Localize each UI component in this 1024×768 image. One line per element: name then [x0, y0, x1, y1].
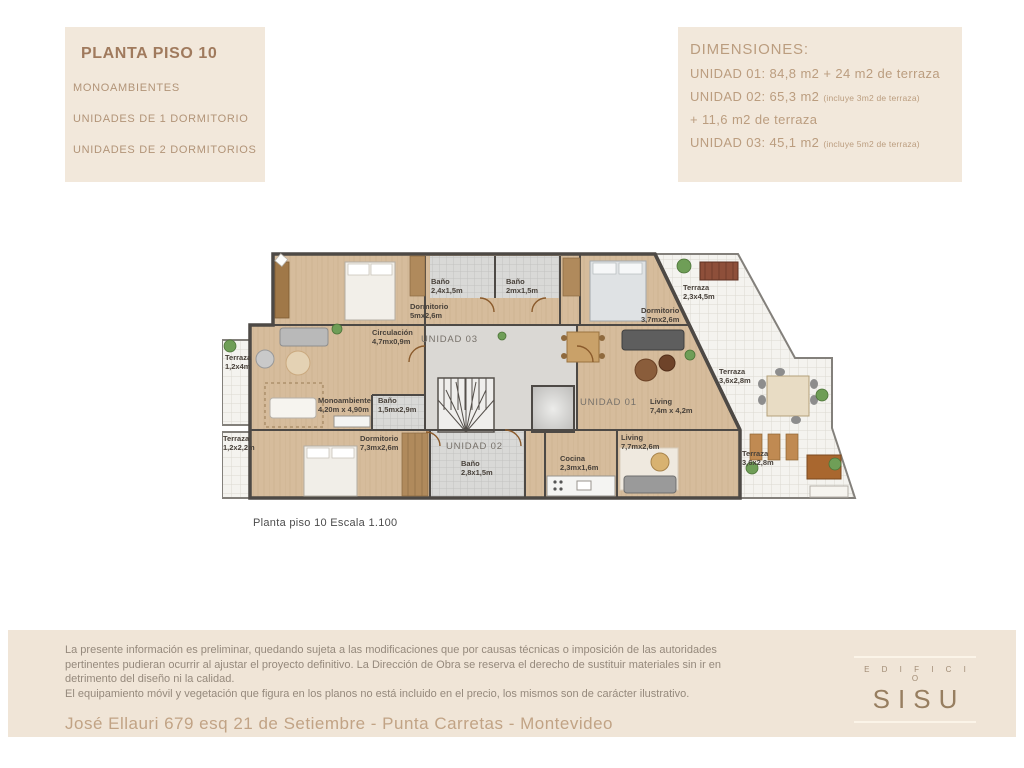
sisu-logo: E D I F I C I O SISU	[850, 656, 980, 723]
room-label: Terraza1,2x4m	[225, 354, 251, 371]
kitchen-counter-icon	[547, 476, 615, 496]
room-label: Circulación4,7mx0,9m	[372, 329, 413, 346]
rug-icon	[286, 351, 310, 375]
bed-icon	[345, 262, 395, 320]
room-label: Cocina2,3mx1,6m	[560, 455, 598, 472]
grill-icon	[700, 262, 738, 280]
legend-item-monoambientes: MONOAMBIENTES	[73, 82, 265, 94]
disclaimer-paragraph-1: La presente información es preliminar, q…	[65, 643, 759, 687]
room-label: Terraza3,6x2,8m	[719, 368, 751, 385]
room-label: Dormitorio5mx2,6m	[410, 303, 448, 320]
sofa-bed-icon	[270, 398, 316, 418]
bench-icon	[810, 486, 848, 497]
elevator-icon	[532, 386, 574, 432]
room-label: Monoambiente4,20m x 4,90m	[318, 397, 371, 414]
unit-label-unidad-01: UNIDAD 01	[580, 397, 637, 408]
rug-icon	[635, 359, 657, 381]
room-label: Living7,7mx2,6m	[621, 434, 659, 451]
footer-band: La presente información es preliminar, q…	[8, 630, 1016, 737]
dimension-line-unidad-01: UNIDAD 01: 84,8 m2 + 24 m2 de terraza	[690, 66, 962, 81]
bed-icon	[590, 261, 646, 321]
logo-rule-top	[854, 656, 976, 658]
logo-rule-bottom	[854, 721, 976, 723]
sofa-icon	[622, 330, 684, 350]
page-title: PLANTA PISO 10	[81, 45, 265, 63]
room-label: Dormitorio7,3mx2,6m	[360, 435, 398, 452]
bed-icon	[304, 446, 357, 496]
room-label: Baño1,5mx2,9m	[378, 397, 416, 414]
disclaimer-text: La presente información es preliminar, q…	[65, 643, 759, 701]
room-label: Terraza2,3x4,5m	[683, 284, 715, 301]
room-label: Baño2,8x1,5m	[461, 460, 493, 477]
unit-label-unidad-03: UNIDAD 03	[421, 334, 478, 345]
room-label: Baño2,4x1,5m	[431, 278, 463, 295]
room-label: Terraza3,6x2,8m	[742, 450, 774, 467]
dimensions-box: DIMENSIONES: UNIDAD 01: 84,8 m2 + 24 m2 …	[678, 27, 962, 182]
floor-plan: Baño2,4x1,5m Baño2mx1,5m Dormitorio5mx2,…	[222, 250, 862, 512]
sofa-icon	[280, 328, 328, 346]
dimension-line-unidad-02: UNIDAD 02: 65,3 m2 (incluye 3m2 de terra…	[690, 89, 962, 104]
stairs-icon	[438, 378, 494, 432]
unit-label-unidad-02: UNIDAD 02	[446, 441, 503, 452]
dimension-line-unidad-02b: + 11,6 m2 de terraza	[690, 112, 962, 127]
dimension-line-unidad-03: UNIDAD 03: 45,1 m2 (incluye 5m2 de terra…	[690, 135, 962, 150]
plan-caption: Planta piso 10 Escala 1.100	[253, 517, 397, 529]
dimensions-title: DIMENSIONES:	[690, 41, 962, 58]
legend-item-1-dormitorio: UNIDADES DE 1 DORMITORIO	[73, 113, 265, 125]
table-icon	[651, 453, 669, 471]
room-label: Terraza1,2x2,2m	[223, 435, 255, 452]
room-label: Baño2mx1,5m	[506, 278, 538, 295]
armchair-icon	[256, 350, 274, 368]
legend-item-2-dormitorios: UNIDADES DE 2 DORMITORIOS	[73, 144, 265, 156]
disclaimer-paragraph-2: El equipamiento móvil y vegetación que f…	[65, 687, 759, 702]
wardrobe-icon	[275, 262, 289, 318]
room-label: Dormitorio3,7mx2,6m	[641, 307, 679, 324]
legend-box: PLANTA PISO 10 MONOAMBIENTES UNIDADES DE…	[65, 27, 265, 182]
logo-edificio-text: E D I F I C I O	[855, 665, 980, 683]
outdoor-table-icon	[767, 376, 809, 416]
room-label: Living7,4m x 4,2m	[650, 398, 693, 415]
logo-sisu-text: SISU	[858, 684, 980, 715]
floor-plan-drawing	[222, 250, 862, 512]
kitchenette-icon	[334, 416, 370, 427]
rug-icon	[659, 355, 675, 371]
sofa-icon	[624, 476, 676, 493]
building-address: José Ellauri 679 esq 21 de Setiembre - P…	[65, 714, 613, 734]
